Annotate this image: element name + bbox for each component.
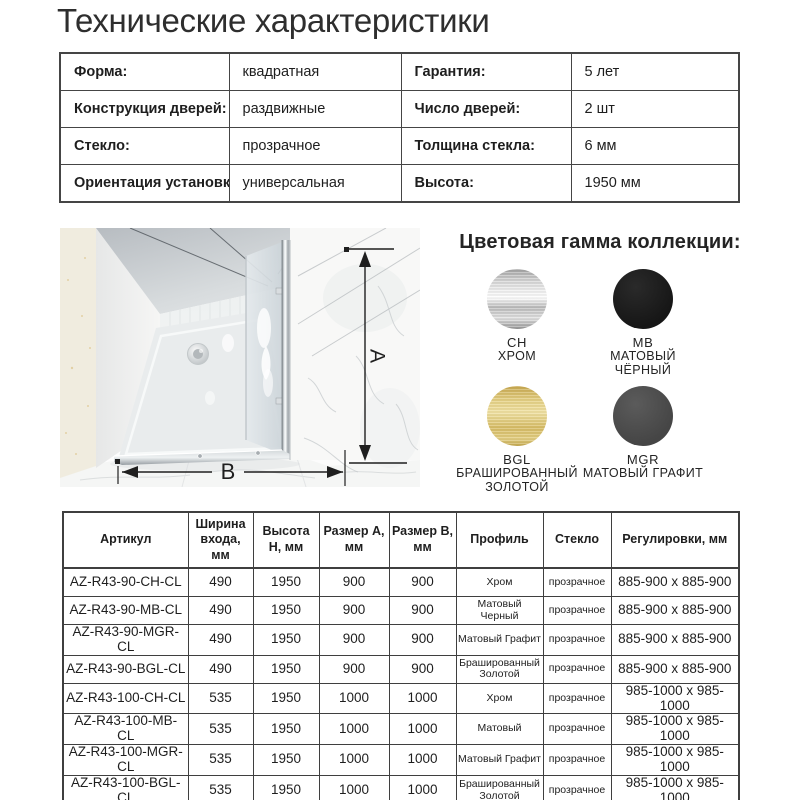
- spec-value: прозрачное: [229, 128, 401, 165]
- chrome-finish-circle: [487, 269, 547, 329]
- product-cell: прозрачное: [543, 655, 611, 683]
- color-palette: CHХРОМMBМАТОВЫЙ ЧЁРНЫЙBGLБРАШИРОВАННЫЙ З…: [454, 269, 706, 494]
- product-cell: 985-1000 x 985-1000: [611, 683, 739, 714]
- product-cell: 490: [188, 625, 253, 656]
- product-cell: прозрачное: [543, 775, 611, 800]
- gold-finish-circle: [487, 386, 547, 446]
- product-col-header: Стекло: [543, 512, 611, 568]
- product-cell: 885-900 x 885-900: [611, 655, 739, 683]
- spec-label: Высота:: [401, 165, 571, 203]
- product-cell: 885-900 x 885-900: [611, 597, 739, 625]
- product-cell: AZ-R43-100-CH-CL: [63, 683, 188, 714]
- product-cell: 535: [188, 714, 253, 745]
- product-col-header: Артикул: [63, 512, 188, 568]
- product-row: AZ-R43-100-MGR-CL535195010001000Матовый …: [63, 745, 739, 776]
- product-cell: 1950: [253, 745, 319, 776]
- product-col-header: Регулировки, мм: [611, 512, 739, 568]
- spec-value: квадратная: [229, 53, 401, 91]
- swatch-code: BGL: [454, 452, 580, 467]
- product-col-header: Размер B, мм: [389, 512, 456, 568]
- product-cell: AZ-R43-100-MGR-CL: [63, 745, 188, 776]
- product-cell: Матовый Графит: [456, 625, 543, 656]
- product-row: AZ-R43-100-BGL-CL535195010001000Браширов…: [63, 775, 739, 800]
- product-cell: 1000: [319, 775, 389, 800]
- product-cell: Хром: [456, 568, 543, 597]
- dimension-marker: [344, 247, 349, 252]
- product-cell: 1000: [389, 683, 456, 714]
- product-cell: 900: [389, 568, 456, 597]
- spec-table: Форма:квадратнаяГарантия:5 летКонструкци…: [59, 52, 740, 203]
- swatch-code: MGR: [580, 452, 706, 467]
- product-cell: Брашированный Золотой: [456, 655, 543, 683]
- page-title: Технические характеристики: [57, 2, 490, 40]
- spec-value: 5 лет: [571, 53, 739, 91]
- spec-row: Форма:квадратнаяГарантия:5 лет: [60, 53, 739, 91]
- product-cell: 490: [188, 568, 253, 597]
- dimension-label-b: B: [221, 459, 236, 484]
- swatch-name: БРАШИРОВАННЫЙ ЗОЛОТОЙ: [454, 467, 580, 494]
- product-cell: AZ-R43-100-BGL-CL: [63, 775, 188, 800]
- product-cell: 1000: [389, 714, 456, 745]
- color-swatch-bgl: BGLБРАШИРОВАННЫЙ ЗОЛОТОЙ: [454, 386, 580, 494]
- product-cell: 900: [319, 625, 389, 656]
- product-cell: 1000: [319, 745, 389, 776]
- product-cell: AZ-R43-90-CH-CL: [63, 568, 188, 597]
- product-cell: 900: [319, 568, 389, 597]
- swatch-name: МАТОВЫЙ ЧЁРНЫЙ: [580, 350, 706, 377]
- product-cell: Хром: [456, 683, 543, 714]
- spec-label: Гарантия:: [401, 53, 571, 91]
- product-cell: прозрачное: [543, 745, 611, 776]
- spec-value: 2 шт: [571, 91, 739, 128]
- product-cell: 900: [319, 597, 389, 625]
- drain-highlight: [199, 349, 203, 353]
- product-table: АртикулШирина входа, ммВысота H, ммРазме…: [62, 511, 740, 800]
- product-cell: 535: [188, 775, 253, 800]
- product-cell: AZ-R43-90-MGR-CL: [63, 625, 188, 656]
- product-cell: 535: [188, 745, 253, 776]
- product-row: AZ-R43-90-BGL-CL4901950900900Брашированн…: [63, 655, 739, 683]
- rail-roller: [198, 454, 202, 458]
- color-swatch-ch: CHХРОМ: [454, 269, 580, 377]
- color-swatch-mgr: MGRМАТОВЫЙ ГРАФИТ: [580, 386, 706, 494]
- color-swatch-mb: MBМАТОВЫЙ ЧЁРНЫЙ: [580, 269, 706, 377]
- product-row: AZ-R43-90-MGR-CL4901950900900Матовый Гра…: [63, 625, 739, 656]
- tray-reflection: [205, 391, 215, 405]
- product-cell: 985-1000 x 985-1000: [611, 745, 739, 776]
- product-cell: 1950: [253, 683, 319, 714]
- black-finish-circle: [613, 269, 673, 329]
- product-cell: прозрачное: [543, 597, 611, 625]
- spec-value: универсальная: [229, 165, 401, 203]
- chrome-profile: [282, 240, 290, 458]
- product-cell: 1950: [253, 714, 319, 745]
- product-cell: 535: [188, 683, 253, 714]
- product-col-header: Профиль: [456, 512, 543, 568]
- spec-label: Толщина стекла:: [401, 128, 571, 165]
- product-col-header: Размер A, мм: [319, 512, 389, 568]
- spec-label: Конструкция дверей:: [60, 91, 229, 128]
- product-cell: AZ-R43-90-MB-CL: [63, 597, 188, 625]
- product-row: AZ-R43-90-CH-CL4901950900900Хромпрозрачн…: [63, 568, 739, 597]
- product-cell: 985-1000 x 985-1000: [611, 714, 739, 745]
- spec-value: 1950 мм: [571, 165, 739, 203]
- spec-row: Стекло:прозрачноеТолщина стекла:6 мм: [60, 128, 739, 165]
- product-cell: прозрачное: [543, 683, 611, 714]
- product-cell: 900: [319, 655, 389, 683]
- spec-value: 6 мм: [571, 128, 739, 165]
- dimension-marker: [115, 459, 120, 464]
- product-cell: 1000: [319, 683, 389, 714]
- product-cell: 490: [188, 597, 253, 625]
- product-cell: 1950: [253, 655, 319, 683]
- product-cell: 490: [188, 655, 253, 683]
- graphite-finish-circle: [613, 386, 673, 446]
- swatch-name: ХРОМ: [454, 350, 580, 364]
- product-cell: 1000: [389, 775, 456, 800]
- spec-row: Ориентация установки:универсальнаяВысота…: [60, 165, 739, 203]
- swatch-code: MB: [580, 335, 706, 350]
- swatch-code: CH: [454, 335, 580, 350]
- product-cell: 900: [389, 597, 456, 625]
- product-cell: Матовый Черный: [456, 597, 543, 625]
- palette-title: Цветовая гамма коллекции:: [445, 231, 755, 254]
- rail-roller: [256, 451, 260, 455]
- product-cell: Матовый: [456, 714, 543, 745]
- product-row: AZ-R43-90-MB-CL4901950900900Матовый Черн…: [63, 597, 739, 625]
- product-cell: Брашированный Золотой: [456, 775, 543, 800]
- spec-label: Форма:: [60, 53, 229, 91]
- dimension-label-a: A: [366, 349, 389, 363]
- product-row: AZ-R43-100-CH-CL535195010001000Хромпрозр…: [63, 683, 739, 714]
- swatch-name: МАТОВЫЙ ГРАФИТ: [580, 467, 706, 481]
- product-cell: 1950: [253, 775, 319, 800]
- product-cell: AZ-R43-90-BGL-CL: [63, 655, 188, 683]
- product-cell: 900: [389, 625, 456, 656]
- product-cell: 885-900 x 885-900: [611, 568, 739, 597]
- glass-reflection: [257, 308, 271, 348]
- product-cell: 1950: [253, 625, 319, 656]
- product-cell: прозрачное: [543, 625, 611, 656]
- spec-row: Конструкция дверей:раздвижныеЧисло двере…: [60, 91, 739, 128]
- spec-label: Ориентация установки:: [60, 165, 229, 203]
- product-cell: 1000: [389, 745, 456, 776]
- tray-reflection: [222, 334, 234, 352]
- product-cell: AZ-R43-100-MB-CL: [63, 714, 188, 745]
- spec-value: раздвижные: [229, 91, 401, 128]
- product-col-header: Ширина входа, мм: [188, 512, 253, 568]
- product-cell: 1000: [319, 714, 389, 745]
- marble-shade: [360, 388, 420, 468]
- product-cell: 885-900 x 885-900: [611, 625, 739, 656]
- product-top-view-image: A B: [60, 228, 420, 487]
- product-table-wrap: АртикулШирина входа, ммВысота H, ммРазме…: [62, 511, 740, 800]
- spec-label: Число дверей:: [401, 91, 571, 128]
- product-cell: 985-1000 x 985-1000: [611, 775, 739, 800]
- product-cell: 900: [389, 655, 456, 683]
- product-cell: прозрачное: [543, 714, 611, 745]
- spec-sheet-page: Технические характеристики Форма:квадрат…: [0, 0, 800, 800]
- spec-table-wrap: Форма:квадратнаяГарантия:5 летКонструкци…: [59, 52, 740, 203]
- spec-label: Стекло:: [60, 128, 229, 165]
- product-row: AZ-R43-100-MB-CL535195010001000Матовыйпр…: [63, 714, 739, 745]
- product-cell: Матовый Графит: [456, 745, 543, 776]
- product-cell: 1950: [253, 568, 319, 597]
- product-cell: 1950: [253, 597, 319, 625]
- product-header-row: АртикулШирина входа, ммВысота H, ммРазме…: [63, 512, 739, 568]
- product-col-header: Высота H, мм: [253, 512, 319, 568]
- left-outer-wall: [60, 228, 96, 478]
- product-cell: прозрачное: [543, 568, 611, 597]
